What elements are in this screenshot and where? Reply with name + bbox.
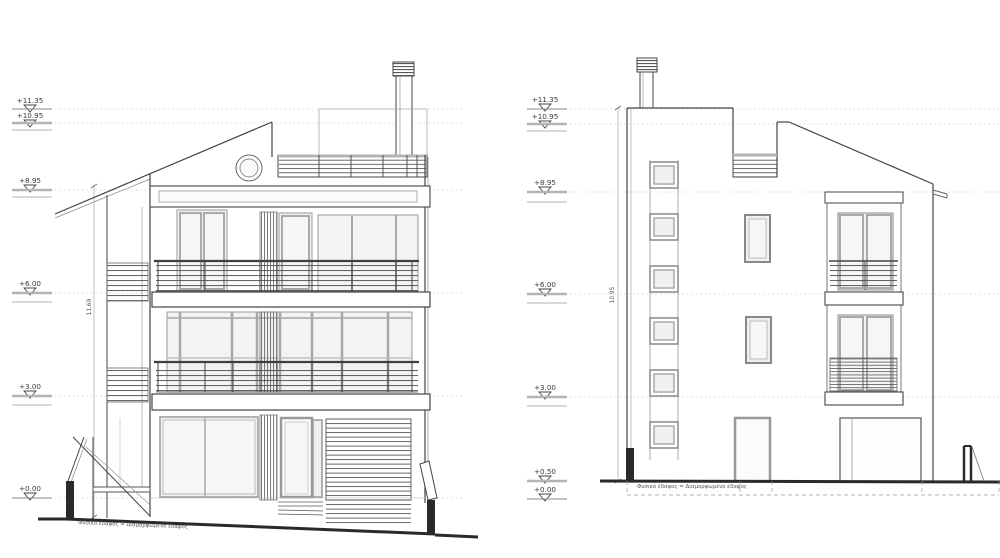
- chimney: [393, 62, 414, 157]
- level-label: +3.00: [534, 383, 556, 392]
- entrance-steps: [278, 502, 323, 515]
- balcony-railing: [154, 362, 419, 392]
- elevations-drawing: +11.35 +10.95 +8.95 +6.00: [0, 0, 1000, 558]
- side-level-markers: +11.35 +10.95 +8.95 +6.00: [527, 95, 567, 501]
- square-window: [650, 318, 678, 344]
- level-label: +10.95: [532, 112, 559, 121]
- garage-opening: [840, 418, 921, 481]
- level-label: +11.35: [17, 96, 44, 105]
- small-window: [746, 317, 771, 363]
- right-fence: [420, 461, 478, 537]
- garage-door: [326, 419, 411, 500]
- level-marker: +11.35: [527, 95, 567, 111]
- level-marker: +11.35: [12, 96, 52, 112]
- balcony-railing: [154, 261, 419, 291]
- level-marker: +0.50: [527, 467, 567, 483]
- wing-louver: [107, 368, 148, 402]
- level-label: +8.95: [534, 178, 556, 187]
- floor-slab: [152, 394, 430, 410]
- balcony-window-upper: [825, 192, 903, 305]
- level-label: +3.00: [19, 382, 41, 391]
- side-door: [735, 418, 770, 481]
- level-guide-lines: [570, 109, 1000, 397]
- floor-slab: [825, 292, 903, 305]
- roof-terrace-railing: [733, 154, 777, 177]
- square-window: [650, 162, 678, 188]
- front-elevation-drawing: +11.35 +10.95 +8.95 +6.00: [12, 62, 478, 537]
- small-window: [745, 215, 770, 262]
- square-window: [650, 214, 678, 240]
- floor-slab: [825, 392, 903, 405]
- ground-floor: [150, 415, 425, 524]
- level-marker: +0.00: [12, 484, 52, 500]
- level-marker: +3.00: [527, 383, 567, 406]
- level-marker: +8.95: [12, 176, 52, 197]
- middle-floor: [152, 312, 430, 410]
- roof-terrace-railing: [278, 155, 427, 177]
- architectural-elevation-sheet: +11.35 +10.95 +8.95 +6.00: [0, 0, 1000, 558]
- balcony-railing: [829, 261, 898, 290]
- top-floor: [152, 210, 430, 307]
- square-window: [650, 422, 678, 448]
- ground-note: Φυσικό έδαφος = Διαμορφωμένο έδαφος: [637, 483, 747, 490]
- ramp-wall: [68, 437, 150, 516]
- level-marker: +6.00: [527, 280, 567, 303]
- floor-slab: [152, 292, 430, 307]
- balcony-window-lower: [825, 305, 903, 405]
- right-fence-post: [964, 446, 984, 481]
- vertical-slat-screen: [260, 415, 277, 500]
- left-fence-post: [38, 481, 74, 519]
- level-label: +8.95: [19, 176, 41, 185]
- chimney: [637, 58, 657, 108]
- level-marker: +0.00: [527, 485, 567, 501]
- square-window: [650, 370, 678, 396]
- level-label: +10.95: [17, 111, 44, 120]
- level-label: +0.50: [534, 467, 556, 476]
- level-marker: +3.00: [12, 382, 52, 405]
- level-marker: +6.00: [12, 279, 52, 302]
- fascia-band: [150, 186, 430, 207]
- side-elevation-drawing: +11.35 +10.95 +8.95 +6.00: [527, 58, 1000, 501]
- side-wing: [93, 195, 150, 519]
- level-marker: +10.95: [527, 112, 567, 131]
- level-marker-icon: [539, 104, 551, 111]
- level-label: +0.00: [19, 484, 41, 493]
- level-label: +6.00: [534, 280, 556, 289]
- ground-line: [600, 481, 1000, 482]
- left-fence-post: [626, 448, 634, 481]
- side-height-dimension: 10.95: [610, 106, 621, 483]
- louver-shutter: [830, 358, 897, 392]
- level-marker: +8.95: [527, 178, 567, 202]
- level-marker-icon: [24, 493, 36, 500]
- front-height-dimension: 11.69: [87, 184, 97, 519]
- level-label: +6.00: [19, 279, 41, 288]
- stair-window-column: [650, 160, 678, 460]
- front-level-markers: +11.35 +10.95 +8.95 +6.00: [12, 96, 52, 500]
- level-label: +0.00: [534, 485, 556, 494]
- level-marker-icon: [539, 494, 551, 501]
- gutter-beam: [933, 190, 947, 198]
- height-dimension-label: 10.95: [610, 286, 616, 303]
- height-dimension-label: 11.69: [87, 298, 93, 315]
- level-label: +11.35: [532, 95, 559, 104]
- level-marker: +10.95: [12, 111, 52, 130]
- wing-louver: [107, 263, 148, 301]
- square-window: [650, 266, 678, 292]
